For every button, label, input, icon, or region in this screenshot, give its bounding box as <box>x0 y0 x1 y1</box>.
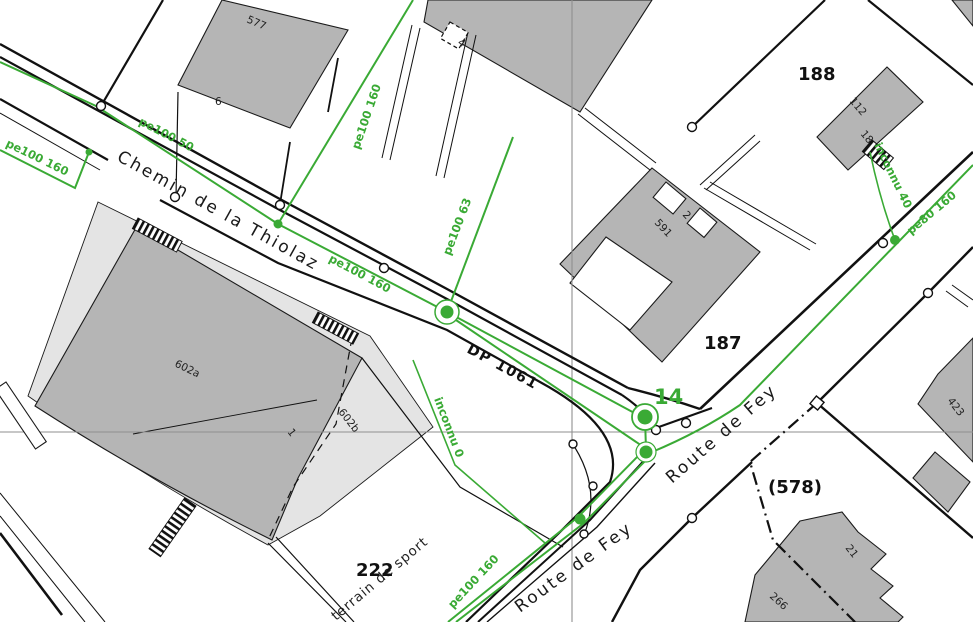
survey-point <box>276 201 285 210</box>
pipe-label-pe100-160-mid: pe100 160 <box>327 251 394 295</box>
pipe-node[interactable] <box>575 514 586 525</box>
building-4 <box>424 0 652 112</box>
survey-point <box>569 440 577 448</box>
survey-point <box>682 419 691 428</box>
survey-point <box>380 264 389 273</box>
pipe-node[interactable] <box>890 235 900 245</box>
pipe-junction-node[interactable] <box>640 446 653 459</box>
node-label-14: 14 <box>654 385 683 409</box>
wall-bottomleft <box>0 533 62 615</box>
valve-node-14[interactable] <box>638 410 653 425</box>
pipe-label-pe100-160-top: pe100 160 <box>349 82 384 151</box>
fence-parcel-4 <box>280 142 290 204</box>
street-label-fey-lower: Route de Fey <box>511 518 637 617</box>
stairs-icon <box>149 498 196 557</box>
survey-point <box>924 289 933 298</box>
footpath-a2 <box>390 28 420 160</box>
boundary-topleft <box>101 0 163 106</box>
survey-point <box>688 514 697 523</box>
map-svg: Chemin de la Thiolaz Route de Fey Route … <box>0 0 973 622</box>
road-fey-west-edge <box>700 152 973 409</box>
wall-591-b <box>585 108 656 163</box>
building-corner-wedge <box>952 0 973 26</box>
building-423 <box>918 338 973 462</box>
valve-node[interactable] <box>441 306 454 319</box>
pipe-label-pe100-63: pe100 63 <box>440 196 475 257</box>
parcel-label-187: 187 <box>704 333 742 354</box>
parcel-label-578: (578) <box>768 477 822 498</box>
parcel-label-188: 188 <box>798 64 836 85</box>
pipe-label-pe80-160: pe80 160 <box>904 188 959 237</box>
road-fey-lower-wall-b <box>487 463 655 622</box>
wall-188-yard-b <box>706 141 760 190</box>
pipe-main-to-node14[interactable] <box>447 312 640 416</box>
wall-591-a <box>578 114 650 170</box>
footpath-b2 <box>444 35 476 178</box>
pipe-tee-node[interactable] <box>274 220 283 229</box>
survey-point <box>97 102 106 111</box>
fence-parcel-4b <box>328 58 338 112</box>
parcel-label-222: 222 <box>356 560 394 581</box>
driveway-423-b <box>946 291 968 307</box>
pipe-tee-node[interactable] <box>86 149 93 156</box>
building-423-annex <box>913 452 970 512</box>
house-number-6: 6 <box>215 96 222 108</box>
survey-point <box>589 482 597 490</box>
map-canvas[interactable]: Chemin de la Thiolaz Route de Fey Route … <box>0 0 973 622</box>
road-fey-east-edge-lower <box>612 462 752 622</box>
pipe-label-inconnu-40: inconnu 40 <box>871 140 915 210</box>
wall-188-yard-a <box>700 135 755 185</box>
survey-point <box>688 123 697 132</box>
footpath-b1 <box>436 32 468 176</box>
road-ref-label: DP 1061 <box>464 341 541 393</box>
path-bottomleft-2 <box>0 516 85 622</box>
survey-point <box>580 530 588 538</box>
survey-point <box>879 239 888 248</box>
